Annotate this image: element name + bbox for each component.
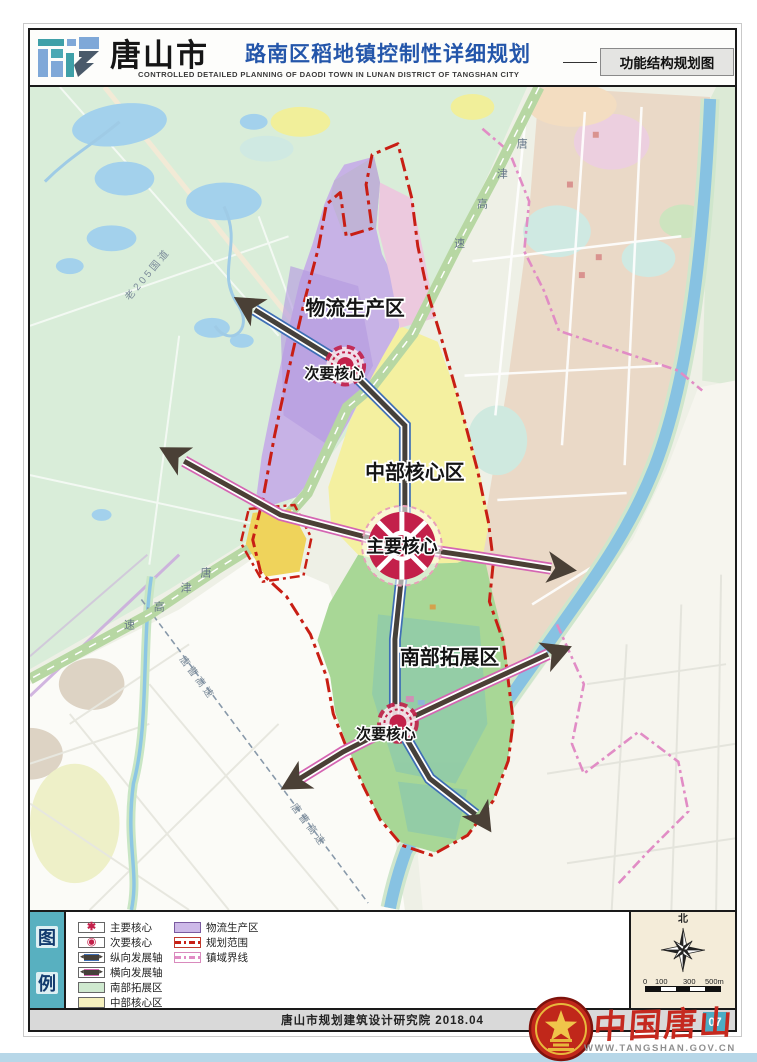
legend-label: 横向发展轴 bbox=[110, 965, 163, 980]
label-core-secondary-north: 次要核心 bbox=[304, 365, 364, 383]
rose bbox=[661, 928, 705, 972]
label-zone-logistics: 物流生产区 bbox=[305, 297, 404, 320]
scale-0: 0 bbox=[643, 977, 647, 986]
svg-text:速: 速 bbox=[454, 237, 465, 250]
legend-item-town-boundary: 镇域界线 bbox=[174, 951, 259, 964]
legend-item-south-zone: 南部拓展区 bbox=[78, 981, 163, 994]
logistics-zone-swatch bbox=[174, 922, 201, 933]
south-zone-swatch bbox=[78, 982, 105, 993]
legend-item-horizontal-axis: 横向发展轴 bbox=[78, 966, 163, 979]
north-label: 北 bbox=[678, 915, 688, 925]
institute-credit: 唐山市规划建筑设计研究院 2018.04 bbox=[281, 1012, 484, 1028]
bottom-blue-strip bbox=[0, 1053, 757, 1062]
label-core-secondary-south: 次要核心 bbox=[356, 725, 416, 743]
label-core-main: 主要核心 bbox=[366, 536, 438, 557]
legend-band: 图 例 主要核心 次要核心 纵向发展轴 bbox=[30, 910, 735, 1008]
plan-title: 路南区稻地镇控制性详细规划 bbox=[245, 38, 531, 68]
svg-text:津: 津 bbox=[497, 168, 508, 181]
legend-label: 物流生产区 bbox=[206, 920, 259, 935]
svg-text:唐: 唐 bbox=[517, 137, 528, 151]
legend-label: 次要核心 bbox=[110, 935, 152, 950]
compass-rose-icon bbox=[657, 925, 709, 975]
legend-title-char-1: 图 bbox=[36, 926, 58, 948]
legend-label: 中部核心区 bbox=[110, 995, 163, 1010]
label-zone-central: 中部核心区 bbox=[365, 461, 464, 484]
scale-bar-segments bbox=[645, 986, 721, 992]
central-zone-swatch bbox=[78, 997, 105, 1008]
scale-300: 300 bbox=[683, 977, 696, 986]
legend-title: 图 例 bbox=[30, 912, 66, 1008]
legend-item-main-core: 主要核心 bbox=[78, 921, 163, 934]
svg-text:高: 高 bbox=[477, 196, 488, 210]
legend-label: 主要核心 bbox=[110, 920, 152, 935]
city-name: 唐山市 bbox=[110, 30, 209, 75]
main-core-rosette-icon bbox=[78, 922, 105, 933]
svg-text:高: 高 bbox=[154, 599, 165, 613]
label-zone-south: 南部拓展区 bbox=[400, 646, 499, 669]
legend-label: 规划范围 bbox=[206, 935, 248, 950]
map-sheet: 唐山市 路南区稻地镇控制性详细规划 CONTROLLED DETAILED PL… bbox=[28, 28, 737, 1032]
planning-boundary-icon bbox=[174, 937, 201, 948]
planning-document-page: 唐山市 路南区稻地镇控制性详细规划 CONTROLLED DETAILED PL… bbox=[0, 0, 757, 1062]
svg-text:唐: 唐 bbox=[201, 566, 212, 580]
sheet-header: 唐山市 路南区稻地镇控制性详细规划 CONTROLLED DETAILED PL… bbox=[30, 30, 735, 87]
legend-item-secondary-core: 次要核心 bbox=[78, 936, 163, 949]
legend-title-char-2: 例 bbox=[36, 972, 58, 994]
svg-text:速: 速 bbox=[124, 618, 135, 631]
scale-bar: 0 100 300 500m bbox=[645, 977, 721, 992]
tangshan-logo-icon bbox=[38, 37, 102, 79]
vertical-axis-icon bbox=[78, 952, 105, 963]
legend-item-central-zone: 中部核心区 bbox=[78, 996, 163, 1009]
plan-subtitle-en: CONTROLLED DETAILED PLANNING OF DAODI TO… bbox=[138, 70, 519, 79]
map-type-box: 功能结构规划图 bbox=[600, 48, 734, 76]
horizontal-axis-icon bbox=[78, 967, 105, 978]
town-boundary-icon bbox=[174, 952, 201, 963]
scale-500m: 500m bbox=[705, 977, 724, 986]
legend-item-logistics-zone: 物流生产区 bbox=[174, 921, 259, 934]
planning-map: 老205国道 bbox=[30, 87, 735, 910]
scale-100: 100 bbox=[655, 977, 668, 986]
legend-item-vertical-axis: 纵向发展轴 bbox=[78, 951, 163, 964]
legend-label: 南部拓展区 bbox=[110, 980, 163, 995]
china-tangshan-brand: 中国唐山 bbox=[592, 996, 736, 1049]
legend-item-planning-boundary: 规划范围 bbox=[174, 936, 259, 949]
secondary-core-dot-icon bbox=[78, 937, 105, 948]
legend-items: 主要核心 次要核心 纵向发展轴 横向发展轴 bbox=[66, 912, 629, 1008]
legend-label: 镇域界线 bbox=[206, 950, 248, 965]
svg-text:津: 津 bbox=[181, 582, 192, 595]
website-url: WWW.TANGSHAN.GOV.CN bbox=[584, 1043, 736, 1054]
legend-label: 纵向发展轴 bbox=[110, 950, 163, 965]
compass-box: 北 0 bbox=[629, 912, 735, 1008]
